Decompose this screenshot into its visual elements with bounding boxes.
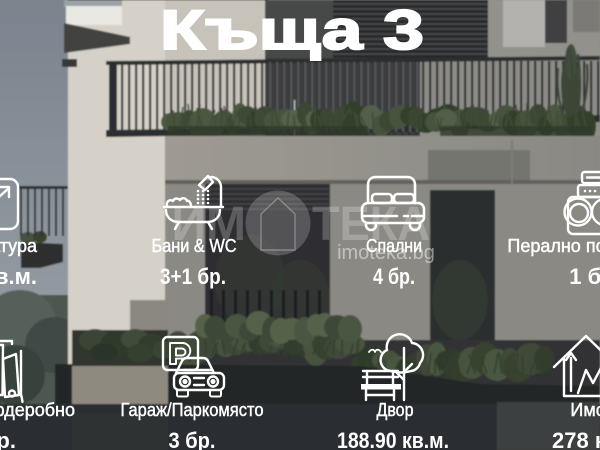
svg-text:4 бр.: 4 бр. [373, 264, 415, 289]
svg-text:Двор: Двор [377, 400, 414, 420]
svg-text:Гардеробно: Гардеробно [0, 400, 75, 420]
svg-text:Бани & WC: Бани & WC [152, 236, 237, 256]
svg-text:165.20 кв.м.: 165.20 кв.м. [0, 264, 37, 289]
svg-text:Квадратура: Квадратура [0, 236, 38, 256]
svg-text:Перално помещение: Перално помещение [507, 236, 600, 256]
svg-text:188.90 кв.м.: 188.90 кв.м. [337, 428, 449, 450]
svg-text:3 бр.: 3 бр. [169, 428, 216, 450]
svg-text:Имот: Имот [570, 400, 600, 420]
svg-text:Къща 3: Къща 3 [160, 0, 424, 61]
svg-text:1 бр.: 1 бр. [0, 428, 16, 450]
svg-text:Спални: Спални [366, 236, 422, 256]
svg-text:3+1 бр.: 3+1 бр. [160, 264, 226, 289]
svg-text:1 бр.: 1 бр. [569, 264, 600, 289]
svg-text:278 кв.м.: 278 кв.м. [552, 428, 600, 450]
svg-text:Гараж/Паркомясто: Гараж/Паркомясто [121, 400, 264, 420]
